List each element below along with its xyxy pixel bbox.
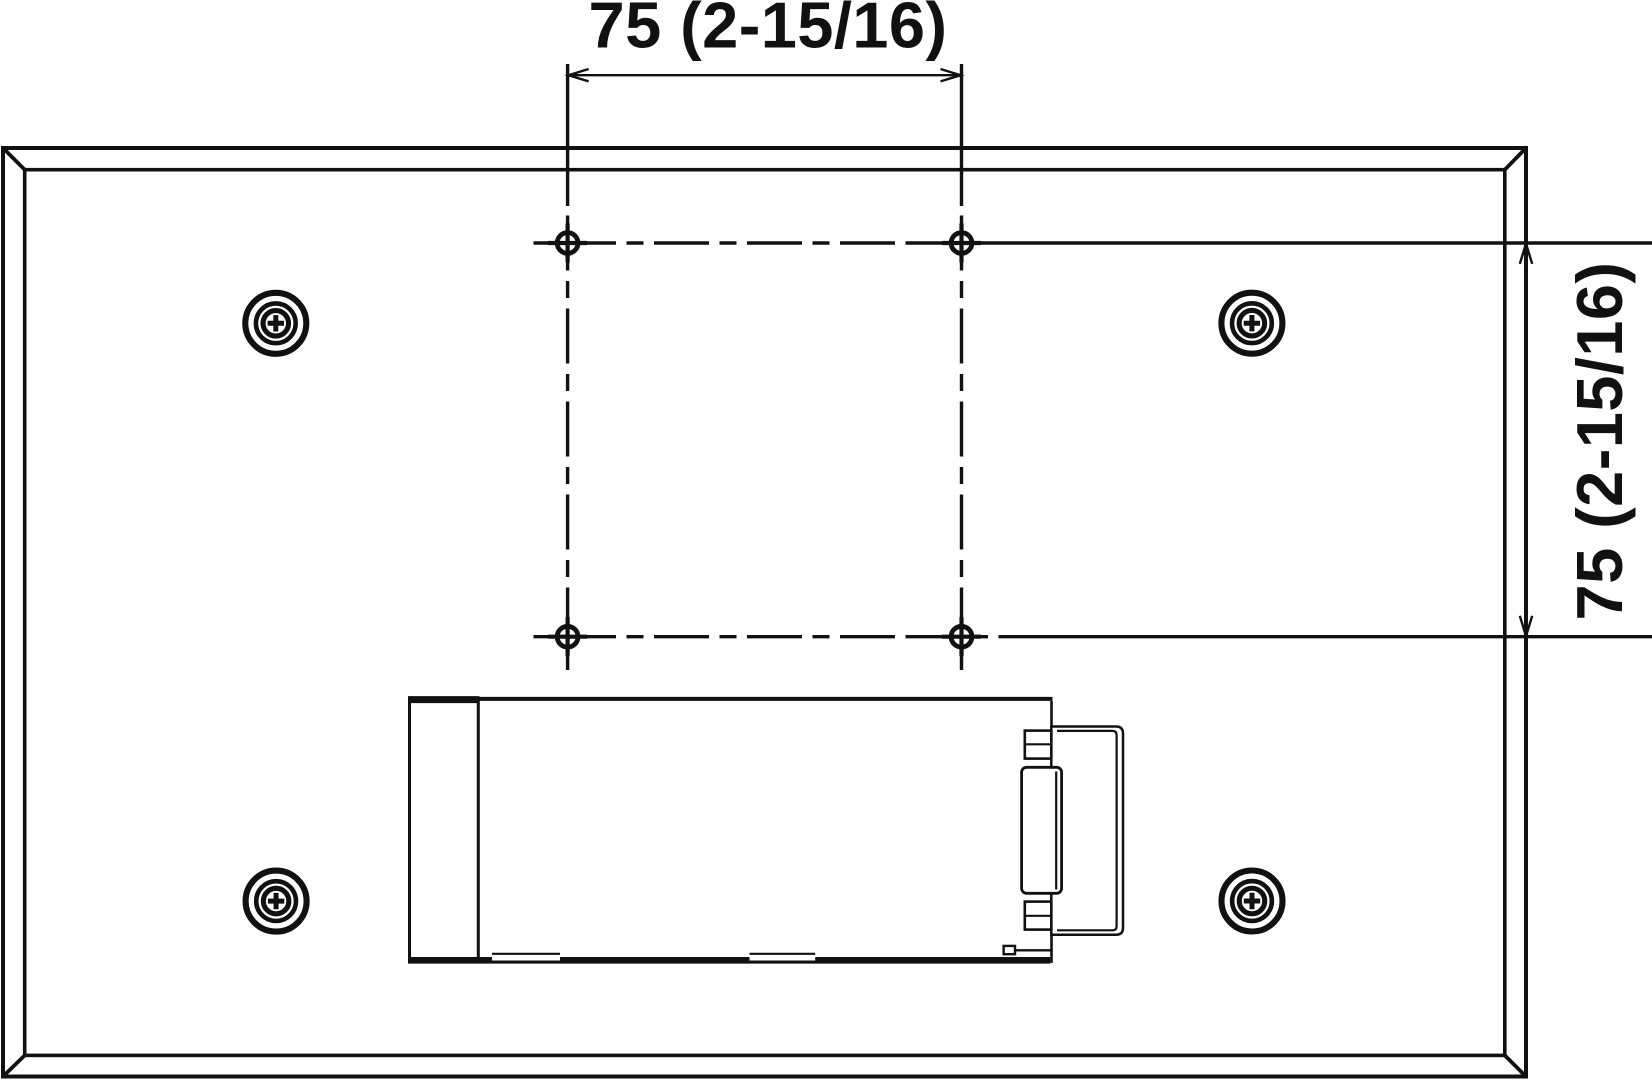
svg-text:75 (2-15/16): 75 (2-15/16) [1563, 262, 1636, 621]
svg-text:75 (2-15/16): 75 (2-15/16) [589, 0, 948, 61]
